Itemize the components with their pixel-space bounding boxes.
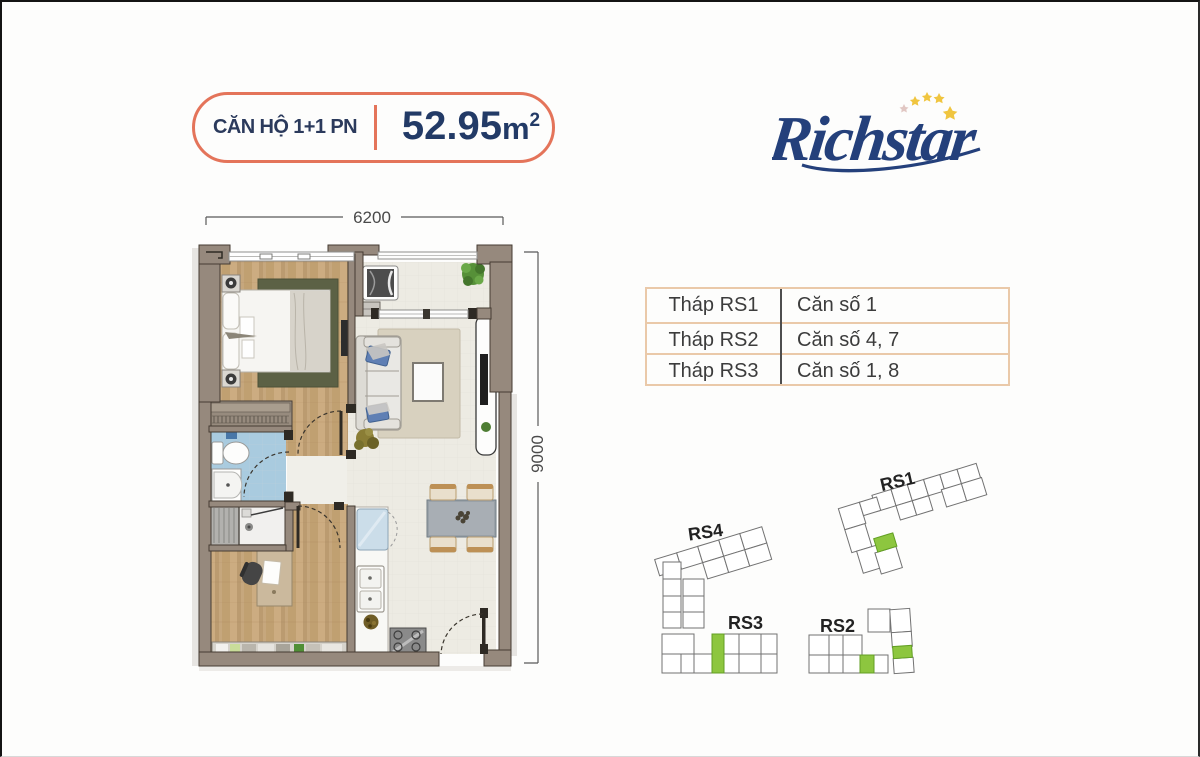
svg-text:RS2: RS2	[820, 616, 855, 636]
svg-text:Richstar: Richstar	[772, 103, 981, 174]
svg-text:RS3: RS3	[728, 613, 763, 633]
svg-text:6200: 6200	[353, 208, 391, 227]
svg-text:9000: 9000	[528, 435, 547, 473]
